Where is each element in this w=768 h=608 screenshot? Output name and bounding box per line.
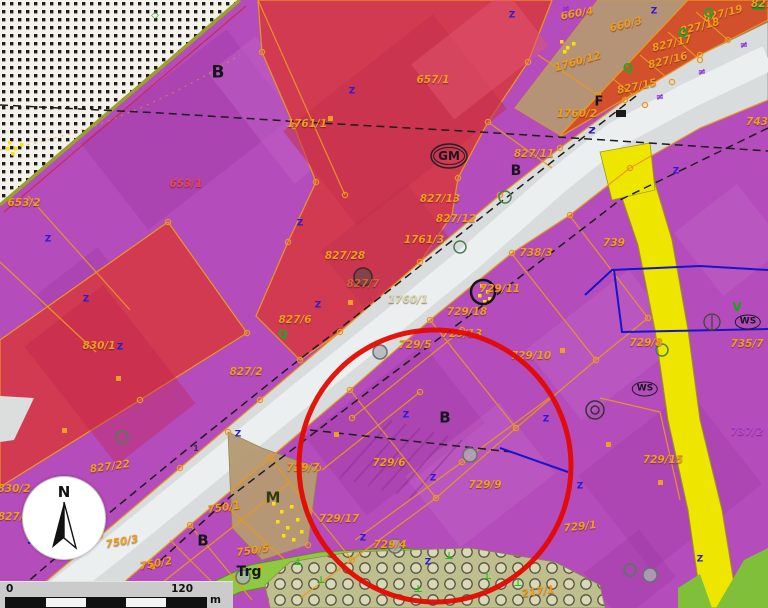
scale-unit-label: m xyxy=(210,594,221,606)
map-graphics xyxy=(0,0,768,608)
corner-badge xyxy=(752,2,765,10)
scale-end-label: 120 xyxy=(171,583,193,595)
scale-bar-segments xyxy=(5,597,207,608)
hydrant-icon xyxy=(616,110,626,117)
scale-bar: 0 120 m xyxy=(0,581,233,608)
north-label: N xyxy=(58,483,71,501)
map-canvas[interactable]: 660/4660/3827/19827/18827/17827/16827/15… xyxy=(0,0,768,608)
dark-symbol-icon xyxy=(354,268,372,286)
north-arrow: N xyxy=(22,476,106,560)
scale-start-label: 0 xyxy=(6,583,13,595)
